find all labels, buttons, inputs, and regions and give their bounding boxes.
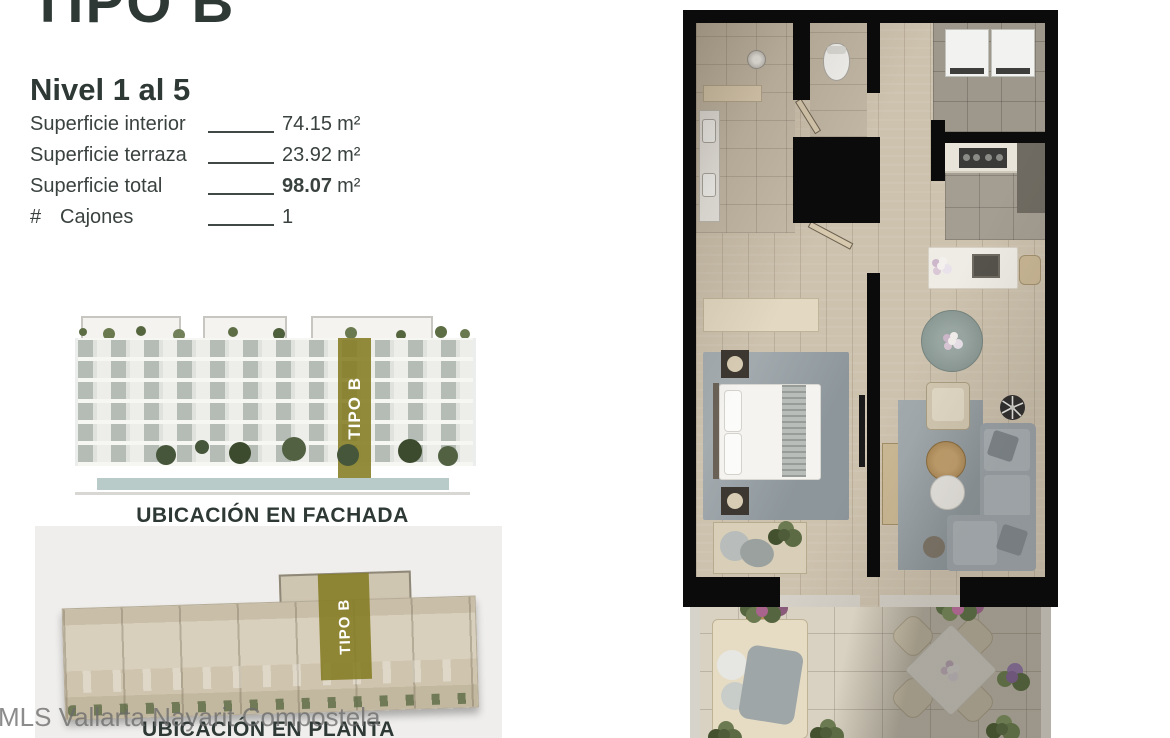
terrace-plant — [820, 727, 832, 738]
bath-bench — [703, 85, 762, 102]
pool — [97, 478, 449, 490]
table-flowers — [948, 337, 956, 345]
dryer — [991, 29, 1035, 77]
terrace-plant — [1006, 671, 1018, 683]
spec-row-terraza: Superficie terraza 23.92 m² — [30, 145, 470, 167]
burner — [996, 154, 1003, 161]
pillow — [724, 433, 742, 475]
stove — [959, 148, 1007, 168]
terrace-table-flowers — [945, 664, 956, 675]
nightstand — [721, 350, 749, 378]
spec-divider-line — [208, 224, 274, 226]
spec-label: Superficie total — [30, 175, 208, 198]
toilet — [823, 43, 850, 81]
burner — [973, 154, 980, 161]
wall-left — [683, 10, 696, 607]
terrace-door-sill — [880, 595, 960, 607]
island-sink — [972, 254, 1000, 278]
roof-pergola — [311, 316, 433, 340]
sofa-cushion — [953, 521, 997, 565]
wall-right — [1045, 10, 1058, 607]
island-flowers — [937, 262, 945, 270]
washer — [945, 29, 989, 77]
wall-bath-divider — [793, 23, 810, 100]
terrace-plant — [718, 729, 730, 738]
bedroom-dresser — [703, 298, 819, 332]
daybed-pillow — [717, 650, 747, 680]
tv — [859, 395, 865, 467]
bed-runner — [782, 385, 806, 477]
terrace-plant — [996, 723, 1008, 735]
floor-plan — [683, 10, 1058, 738]
wall-top — [683, 10, 1058, 23]
building-facade — [75, 338, 476, 466]
page-title: TIPO B — [30, 0, 235, 32]
sofa-chaise — [947, 515, 1036, 571]
wall-bottom-left — [683, 577, 780, 607]
wall-laundry — [933, 132, 1045, 143]
wall-bedroom-divider — [867, 273, 880, 577]
burner — [985, 154, 992, 161]
spec-list: Superficie interior 74.15 m² Superficie … — [30, 114, 470, 238]
spec-unit: m² — [337, 144, 360, 167]
sofa-pillow — [996, 524, 1029, 557]
bed — [719, 384, 821, 480]
spec-row-cajones: #Cajones 1 — [30, 207, 470, 229]
side-table — [930, 475, 965, 510]
roof-plants — [79, 328, 87, 336]
brochure-page: TIPO B Nivel 1 al 5 Superficie interior … — [0, 0, 1170, 738]
terrace-daybed — [712, 619, 808, 738]
roof-pergola — [81, 316, 181, 340]
bar-stool — [1019, 255, 1041, 285]
sofa — [980, 423, 1036, 523]
palm-trees — [195, 440, 209, 454]
facade-caption: UBICACIÓN EN FACHADA — [75, 504, 470, 528]
laundry-closet — [945, 29, 1037, 77]
spec-row-interior: Superficie interior 74.15 m² — [30, 114, 470, 136]
ground-line — [75, 492, 470, 495]
sink — [702, 119, 716, 143]
pouf — [923, 536, 945, 558]
spec-label-text: Cajones — [60, 206, 133, 228]
burner — [963, 154, 970, 161]
wall-wc — [867, 23, 880, 93]
sofa-cushion — [984, 475, 1030, 517]
spec-unit: m² — [337, 113, 360, 136]
spec-label: #Cajones — [30, 206, 208, 229]
armchair — [926, 382, 970, 430]
sink — [702, 173, 716, 197]
terrace — [690, 607, 1051, 738]
kitchen-island — [928, 247, 1018, 289]
bedroom-bench — [713, 522, 807, 574]
spec-prefix: # — [30, 206, 60, 229]
wall-kitchen-stub — [931, 120, 945, 181]
terrace-door-sill — [780, 595, 860, 607]
spec-value: 23.92 — [282, 144, 332, 167]
tipo-b-planta-label: TIPO B — [336, 598, 355, 655]
facade-illustration: TIPO B — [75, 312, 470, 497]
terrace-wall-left — [690, 607, 700, 738]
nightstand — [721, 487, 749, 515]
pillow — [724, 390, 742, 432]
wall-bottom-right — [960, 577, 1058, 607]
spec-value: 98.07 — [282, 175, 332, 198]
spec-value: 1 — [282, 206, 293, 229]
tipo-b-facade-highlight: TIPO B — [338, 338, 371, 478]
entry-closet-block — [793, 137, 880, 223]
spec-value: 74.15 — [282, 113, 332, 136]
ceiling-fan — [999, 394, 1026, 421]
roof-pergola — [203, 316, 287, 340]
dining-table — [921, 310, 983, 372]
spec-label: Superficie terraza — [30, 144, 208, 167]
spec-row-total: Superficie total 98.07 m² — [30, 176, 470, 198]
level-title: Nivel 1 al 5 — [30, 72, 190, 108]
daybed-blanket — [738, 644, 805, 726]
shower-head — [747, 50, 766, 69]
kitchen-side-counter — [1017, 143, 1045, 213]
spec-unit: m² — [337, 175, 360, 198]
spec-divider-line — [208, 131, 274, 133]
spec-divider-line — [208, 193, 274, 195]
terrace-wall-right — [1041, 607, 1051, 738]
bench-plant — [778, 529, 790, 541]
facade-ground — [75, 466, 470, 494]
bathroom-vanity — [699, 110, 720, 222]
spec-divider-line — [208, 162, 274, 164]
spec-label: Superficie interior — [30, 113, 208, 136]
tipo-b-facade-label: TIPO B — [345, 377, 365, 440]
tipo-b-planta-highlight: TIPO B — [318, 573, 372, 681]
watermark: MLS Vallarta Nayarit Compostela — [0, 702, 380, 733]
